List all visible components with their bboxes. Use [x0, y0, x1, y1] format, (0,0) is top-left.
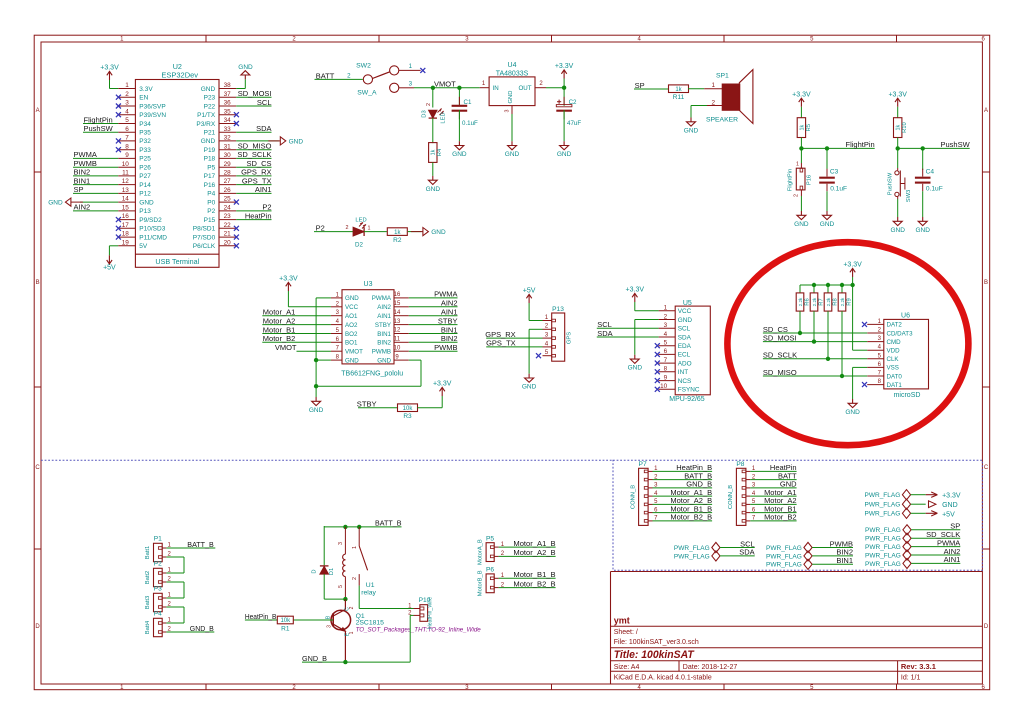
svg-text:GND: GND — [48, 200, 63, 207]
svg-text:U5: U5 — [683, 300, 692, 307]
svg-text:14: 14 — [122, 196, 130, 203]
svg-text:+3.3V: +3.3V — [279, 276, 298, 283]
svg-text:7: 7 — [125, 135, 129, 142]
svg-text:GND: GND — [431, 229, 446, 236]
svg-text:20: 20 — [224, 239, 232, 246]
svg-text:1: 1 — [712, 82, 716, 89]
svg-text:GND: GND — [557, 151, 572, 158]
svg-text:PWR_FLAG: PWR_FLAG — [674, 545, 710, 552]
svg-text:1k: 1k — [394, 230, 401, 236]
svg-text:P17: P17 — [204, 173, 216, 180]
svg-text:Motor_B2_B: Motor_B2_B — [670, 513, 712, 522]
svg-text:PWR_FLAG: PWR_FLAG — [865, 492, 901, 499]
svg-text:Title: 100kinSAT: Title: 100kinSAT — [614, 649, 695, 661]
svg-text:R10: R10 — [902, 122, 908, 133]
svg-text:10k: 10k — [280, 618, 291, 624]
svg-text:GND: GND — [942, 502, 958, 509]
svg-text:2: 2 — [794, 194, 800, 197]
svg-text:TO_SOT_Packages_THT:TO-92_Inli: TO_SOT_Packages_THT:TO-92_Inline_Wide — [356, 627, 482, 634]
svg-text:FlightPin: FlightPin — [84, 115, 113, 124]
svg-text:SD_MOSI: SD_MOSI — [763, 333, 797, 342]
svg-text:C3: C3 — [830, 169, 839, 176]
svg-text:GPS_RX: GPS_RX — [485, 330, 515, 339]
svg-text:PWR_FLAG: PWR_FLAG — [766, 545, 802, 552]
svg-text:DAT1: DAT1 — [887, 382, 903, 389]
svg-text:SD_CS: SD_CS — [246, 159, 271, 168]
svg-text:0.1uF: 0.1uF — [830, 186, 847, 193]
svg-text:Batt1: Batt1 — [145, 546, 151, 560]
svg-text:R9: R9 — [846, 298, 852, 305]
svg-text:P3: P3 — [154, 586, 162, 593]
svg-text:2: 2 — [352, 577, 358, 580]
svg-text:2: 2 — [125, 91, 129, 98]
svg-text:GND: GND — [505, 151, 520, 158]
svg-text:P2: P2 — [316, 223, 325, 232]
svg-text:VDD: VDD — [887, 348, 901, 355]
svg-text:P16: P16 — [807, 175, 813, 185]
svg-text:P18: P18 — [204, 156, 216, 163]
svg-text:R3: R3 — [403, 413, 412, 420]
svg-text:23: 23 — [224, 213, 232, 220]
svg-text:D: D — [35, 624, 40, 630]
svg-text:relay: relay — [361, 589, 376, 596]
svg-text:GND: GND — [201, 86, 216, 93]
svg-text:Rev: 3.3.1: Rev: 3.3.1 — [901, 662, 936, 671]
svg-text:LED: LED — [441, 112, 447, 123]
svg-text:STBY: STBY — [375, 322, 391, 329]
svg-text:SP: SP — [635, 81, 645, 90]
svg-text:PushSW: PushSW — [941, 140, 971, 149]
svg-text:GND: GND — [915, 227, 930, 234]
svg-text:PWR_FLAG: PWR_FLAG — [766, 553, 802, 560]
svg-text:35: 35 — [224, 108, 232, 115]
svg-text:1k: 1k — [799, 124, 805, 130]
svg-text:P5: P5 — [207, 165, 215, 172]
svg-text:U3: U3 — [364, 281, 373, 288]
svg-text:FlightPin: FlightPin — [788, 169, 794, 192]
svg-text:P13: P13 — [139, 208, 151, 215]
svg-text:B: B — [984, 280, 988, 286]
svg-text:4: 4 — [125, 108, 129, 115]
svg-text:B: B — [326, 615, 332, 619]
svg-text:0.1uF: 0.1uF — [926, 186, 943, 193]
svg-text:USB Terminal: USB Terminal — [155, 257, 199, 266]
svg-text:13: 13 — [122, 187, 130, 194]
svg-text:GND: GND — [289, 138, 304, 145]
svg-text:3: 3 — [125, 100, 129, 107]
svg-text:P8: P8 — [736, 461, 744, 468]
svg-text:GND: GND — [628, 365, 643, 372]
svg-text:microSD: microSD — [894, 392, 921, 399]
svg-text:STBY: STBY — [438, 316, 458, 325]
svg-text:2.2k: 2.2k — [812, 297, 817, 306]
svg-text:GND: GND — [678, 317, 693, 324]
svg-text:P3/RX: P3/RX — [196, 121, 215, 128]
svg-text:U1: U1 — [366, 582, 375, 589]
svg-text:P0: P0 — [207, 199, 215, 206]
svg-text:30: 30 — [224, 152, 232, 159]
svg-text:1k: 1k — [675, 87, 682, 93]
svg-text:P2: P2 — [154, 561, 162, 568]
svg-text:INT: INT — [678, 369, 688, 376]
svg-text:P1: P1 — [154, 536, 162, 543]
svg-text:18: 18 — [122, 231, 130, 238]
svg-text:B: B — [36, 280, 40, 286]
svg-text:2: 2 — [346, 225, 349, 231]
svg-text:VSS: VSS — [887, 365, 899, 372]
svg-text:AIN2: AIN2 — [377, 304, 391, 311]
svg-text:+3.3V: +3.3V — [626, 287, 645, 294]
svg-text:IN: IN — [493, 85, 499, 92]
svg-text:Motor_A2_B: Motor_A2_B — [513, 548, 555, 557]
svg-text:SP1: SP1 — [716, 72, 729, 79]
svg-text:22: 22 — [224, 222, 232, 229]
svg-text:P22: P22 — [204, 103, 216, 110]
svg-text:GND: GND — [452, 151, 467, 158]
svg-text:5: 5 — [338, 585, 344, 588]
svg-text:29: 29 — [224, 161, 232, 168]
svg-text:5: 5 — [545, 349, 549, 356]
svg-text:1: 1 — [796, 162, 799, 168]
svg-text:SW2: SW2 — [356, 62, 371, 69]
svg-text:PWMB: PWMB — [74, 159, 97, 168]
svg-text:Date: 2018-12-27: Date: 2018-12-27 — [683, 664, 738, 671]
svg-text:P26: P26 — [139, 165, 151, 172]
svg-text:SCL: SCL — [257, 98, 272, 107]
svg-text:MotorA_B: MotorA_B — [478, 539, 484, 565]
svg-text:P5: P5 — [486, 536, 494, 543]
svg-text:R5: R5 — [806, 124, 812, 131]
svg-text:P15: P15 — [204, 217, 216, 224]
svg-text:+3.3V: +3.3V — [100, 65, 119, 72]
svg-text:8: 8 — [664, 366, 668, 373]
svg-text:GND: GND — [684, 127, 699, 134]
svg-text:GPS_TX: GPS_TX — [486, 339, 516, 348]
svg-text:GPS_TX: GPS_TX — [242, 176, 272, 185]
svg-text:8: 8 — [125, 143, 129, 150]
svg-text:BIN2: BIN2 — [74, 168, 91, 177]
svg-text:C: C — [984, 465, 989, 471]
svg-text:OUT: OUT — [518, 85, 531, 92]
svg-text:Batt3: Batt3 — [145, 596, 151, 610]
svg-text:PWR_FLAG: PWR_FLAG — [865, 527, 901, 534]
svg-text:PWR_FLAG: PWR_FLAG — [865, 536, 901, 543]
svg-text:P23: P23 — [204, 95, 216, 102]
svg-text:SD_SCLK: SD_SCLK — [763, 351, 797, 360]
svg-text:GND: GND — [345, 357, 359, 364]
svg-text:C1: C1 — [464, 99, 472, 106]
svg-text:Motor_A2: Motor_A2 — [263, 316, 296, 325]
svg-text:KiCad E.D.A. kicad 4.0.1-stab: KiCad E.D.A. kicad 4.0.1-stable — [614, 675, 712, 682]
svg-text:16: 16 — [394, 292, 401, 298]
svg-text:BIN1: BIN1 — [377, 331, 391, 338]
svg-text:+3.3V: +3.3V — [888, 92, 907, 99]
svg-text:14: 14 — [394, 310, 401, 316]
svg-text:SPEAKER: SPEAKER — [706, 117, 738, 124]
svg-text:SCL: SCL — [678, 326, 691, 333]
svg-text:P34: P34 — [139, 121, 151, 128]
svg-text:+3.3V: +3.3V — [555, 63, 574, 70]
svg-text:GND_B: GND_B — [190, 624, 214, 633]
svg-text:9: 9 — [664, 374, 668, 381]
svg-text:BIN2: BIN2 — [441, 334, 458, 343]
svg-text:5V: 5V — [139, 243, 148, 250]
svg-text:MotorB_B: MotorB_B — [478, 570, 484, 596]
svg-text:P36/SVP: P36/SVP — [139, 103, 165, 110]
svg-text:6: 6 — [664, 348, 668, 355]
svg-text:+3.3V: +3.3V — [942, 493, 961, 500]
svg-text:AIN1: AIN1 — [255, 185, 272, 194]
svg-text:PWR_FLAG: PWR_FLAG — [674, 553, 710, 560]
svg-text:10: 10 — [660, 383, 668, 390]
svg-text:FlightPin: FlightPin — [846, 140, 875, 149]
svg-text:SW_A: SW_A — [357, 90, 377, 97]
svg-text:PWR_FLAG: PWR_FLAG — [865, 552, 901, 559]
svg-text:A: A — [984, 108, 988, 114]
svg-text:P10/SD3: P10/SD3 — [139, 226, 165, 233]
svg-text:Motor_B1_B: Motor_B1_B — [513, 570, 555, 579]
svg-text:P14: P14 — [139, 182, 151, 189]
svg-text:BATT_B: BATT_B — [375, 519, 402, 528]
svg-text:1: 1 — [368, 226, 371, 232]
svg-text:17: 17 — [122, 222, 130, 229]
svg-text:BATT_B: BATT_B — [187, 540, 214, 549]
svg-text:GPS_RX: GPS_RX — [241, 168, 271, 177]
svg-text:GND: GND — [139, 199, 154, 206]
svg-text:36: 36 — [224, 100, 232, 107]
svg-text:P2: P2 — [207, 208, 215, 215]
svg-text:GND: GND — [309, 407, 324, 414]
svg-text:7: 7 — [664, 357, 668, 364]
svg-text:5: 5 — [664, 340, 668, 347]
svg-text:R11: R11 — [673, 94, 685, 101]
svg-text:P1/TX: P1/TX — [197, 112, 216, 119]
svg-text:P2: P2 — [262, 203, 271, 212]
svg-text:3: 3 — [664, 322, 668, 329]
svg-text:P21: P21 — [204, 130, 216, 137]
svg-text:BIN1: BIN1 — [836, 556, 853, 565]
svg-text:3: 3 — [409, 81, 413, 88]
svg-text:+5V: +5V — [103, 265, 116, 272]
svg-text:VCC: VCC — [678, 308, 692, 315]
svg-text:SD_SCLK: SD_SCLK — [237, 150, 271, 159]
svg-text:AO2: AO2 — [345, 322, 358, 329]
svg-text:U4: U4 — [508, 62, 517, 69]
svg-text:P12: P12 — [139, 191, 151, 198]
svg-text:Motor_B2: Motor_B2 — [764, 513, 797, 522]
svg-text:5: 5 — [125, 117, 129, 124]
svg-text:CONN_B: CONN_B — [728, 485, 734, 509]
svg-text:P6: P6 — [486, 567, 494, 574]
svg-text:VMOT: VMOT — [275, 343, 297, 352]
svg-text:Batt4: Batt4 — [145, 620, 151, 634]
svg-text:1k: 1k — [896, 124, 902, 130]
svg-text:P16: P16 — [204, 182, 216, 189]
svg-text:CONN_B: CONN_B — [630, 485, 636, 509]
svg-text:PushSW: PushSW — [887, 172, 893, 195]
svg-text:CLK: CLK — [887, 356, 900, 363]
svg-text:1k: 1k — [431, 149, 437, 155]
svg-text:BO2: BO2 — [345, 331, 358, 338]
svg-text:PWR_FLAG: PWR_FLAG — [766, 562, 802, 569]
svg-text:R2: R2 — [393, 237, 402, 244]
svg-text:HeatPin: HeatPin — [245, 211, 272, 220]
svg-text:3.3V: 3.3V — [139, 86, 153, 93]
svg-text:GND_B: GND_B — [302, 654, 327, 663]
svg-text:+3.3V: +3.3V — [792, 92, 811, 99]
svg-text:47uF: 47uF — [567, 120, 581, 127]
svg-text:FSYNC: FSYNC — [678, 387, 700, 394]
svg-text:A: A — [36, 108, 40, 114]
svg-text:CMD: CMD — [887, 339, 902, 346]
svg-text:AO1: AO1 — [345, 313, 358, 320]
svg-text:VCC: VCC — [345, 304, 359, 311]
svg-text:BIN1: BIN1 — [74, 176, 91, 185]
svg-text:12: 12 — [122, 178, 130, 185]
svg-text:GND: GND — [794, 221, 809, 228]
svg-text:P7/SD0: P7/SD0 — [193, 234, 216, 241]
svg-text:R1: R1 — [281, 625, 290, 632]
svg-text:P25: P25 — [139, 156, 151, 163]
svg-text:AIN2: AIN2 — [441, 299, 458, 308]
svg-text:2: 2 — [349, 606, 355, 609]
svg-text:P32: P32 — [139, 138, 151, 145]
svg-text:BIN1: BIN1 — [441, 325, 458, 334]
svg-text:31: 31 — [224, 143, 232, 150]
svg-text:TA48033S: TA48033S — [496, 71, 529, 78]
svg-text:SCL: SCL — [597, 320, 612, 329]
svg-text:P7: P7 — [639, 461, 647, 468]
svg-text:37: 37 — [224, 91, 232, 98]
svg-text:Id: 1/1: Id: 1/1 — [901, 675, 921, 682]
svg-text:R8: R8 — [832, 298, 838, 305]
svg-text:32: 32 — [224, 135, 232, 142]
svg-text:HeatPin_B: HeatPin_B — [245, 612, 277, 621]
svg-text:12: 12 — [394, 328, 401, 334]
svg-text:3: 3 — [338, 542, 344, 545]
svg-text:PWMB: PWMB — [434, 343, 457, 352]
svg-text:SDA: SDA — [678, 334, 692, 341]
svg-text:Motor_B1: Motor_B1 — [263, 325, 296, 334]
svg-text:D1: D1 — [329, 568, 335, 575]
svg-text:P35: P35 — [139, 130, 151, 137]
svg-text:PWR_FLAG: PWR_FLAG — [865, 511, 901, 518]
svg-text:GND: GND — [377, 357, 391, 364]
svg-text:SP: SP — [74, 185, 84, 194]
svg-text:C2: C2 — [569, 99, 577, 106]
svg-text:25: 25 — [224, 196, 232, 203]
svg-text:11: 11 — [122, 170, 129, 177]
svg-text:P13: P13 — [552, 306, 564, 313]
svg-text:+3.3V: +3.3V — [843, 262, 862, 269]
svg-text:C4: C4 — [926, 169, 935, 176]
svg-text:PWMA: PWMA — [74, 150, 97, 159]
svg-text:GPS: GPS — [567, 332, 573, 344]
svg-text:2: 2 — [664, 313, 668, 320]
svg-text:+3.3V: +3.3V — [433, 381, 452, 388]
svg-text:BO1: BO1 — [345, 340, 358, 347]
svg-text:GND: GND — [201, 138, 216, 145]
svg-text:Motor_A1: Motor_A1 — [263, 308, 296, 317]
svg-text:SD_MISO: SD_MISO — [238, 142, 272, 151]
svg-text:TB6612FNG_pololu: TB6612FNG_pololu — [341, 371, 403, 378]
svg-text:15: 15 — [122, 205, 130, 212]
svg-text:1: 1 — [545, 314, 549, 321]
svg-text:6: 6 — [125, 126, 129, 133]
svg-text:ECL: ECL — [678, 352, 691, 359]
svg-text:Motor_B2_B: Motor_B2_B — [513, 579, 555, 588]
svg-text:PWMA: PWMA — [372, 295, 392, 302]
svg-text:AIN2: AIN2 — [74, 203, 91, 212]
svg-text:GND: GND — [238, 64, 253, 71]
svg-text:11: 11 — [394, 337, 401, 343]
svg-text:PWMA: PWMA — [434, 290, 457, 299]
svg-text:P8/SD1: P8/SD1 — [193, 226, 216, 233]
svg-text:26: 26 — [224, 187, 232, 194]
svg-text:PWR_FLAG: PWR_FLAG — [865, 561, 901, 568]
svg-text:GND: GND — [820, 221, 835, 228]
svg-text:15: 15 — [394, 301, 401, 307]
svg-text:SW3: SW3 — [906, 190, 912, 203]
svg-text:2: 2 — [712, 99, 716, 106]
svg-text:1: 1 — [664, 305, 668, 312]
svg-text:GND: GND — [845, 409, 860, 416]
svg-text:27: 27 — [224, 178, 232, 185]
svg-text:3: 3 — [505, 110, 511, 113]
svg-text:MPU-92/65: MPU-92/65 — [669, 396, 705, 403]
svg-text:R7: R7 — [818, 298, 824, 305]
svg-text:STBY: STBY — [357, 400, 377, 409]
svg-text:9: 9 — [125, 152, 129, 159]
svg-text:R4: R4 — [437, 148, 443, 156]
svg-text:33: 33 — [224, 126, 232, 133]
svg-text:10: 10 — [394, 345, 401, 351]
svg-text:U6: U6 — [901, 313, 910, 320]
svg-text:28: 28 — [224, 170, 232, 177]
svg-text:2.2k: 2.2k — [840, 297, 845, 306]
svg-text:SDA: SDA — [739, 548, 754, 557]
svg-text:P33: P33 — [139, 147, 151, 154]
svg-text:21: 21 — [224, 231, 232, 238]
svg-text:EN: EN — [139, 95, 148, 102]
svg-text:AIN1: AIN1 — [377, 313, 391, 320]
svg-text:10k: 10k — [403, 406, 414, 412]
svg-text:Motor_A1_B: Motor_A1_B — [513, 539, 555, 548]
svg-text:C: C — [35, 465, 40, 471]
svg-text:D: D — [312, 569, 318, 573]
svg-text:DAT2: DAT2 — [887, 322, 903, 329]
svg-text:GND: GND — [345, 295, 359, 302]
svg-text:LED: LED — [355, 218, 366, 224]
svg-text:AIN1: AIN1 — [441, 308, 458, 317]
svg-text:4: 4 — [545, 340, 549, 347]
svg-text:SD_MISO: SD_MISO — [763, 368, 797, 377]
svg-text:PWR_FLAG: PWR_FLAG — [865, 544, 901, 551]
svg-text:2: 2 — [545, 323, 549, 330]
svg-text:13: 13 — [394, 319, 401, 325]
svg-text:1: 1 — [409, 63, 413, 70]
svg-text:P9/SD2: P9/SD2 — [139, 217, 162, 224]
svg-text:10: 10 — [122, 161, 130, 168]
svg-text:P4: P4 — [154, 611, 162, 618]
svg-text:4: 4 — [664, 331, 668, 338]
svg-text:BIN2: BIN2 — [377, 340, 391, 347]
svg-text:D2: D2 — [355, 242, 363, 249]
svg-text:+5V: +5V — [523, 288, 536, 295]
svg-text:EDA: EDA — [678, 343, 692, 350]
svg-text:D3: D3 — [422, 110, 428, 117]
svg-text:P19: P19 — [204, 147, 216, 154]
